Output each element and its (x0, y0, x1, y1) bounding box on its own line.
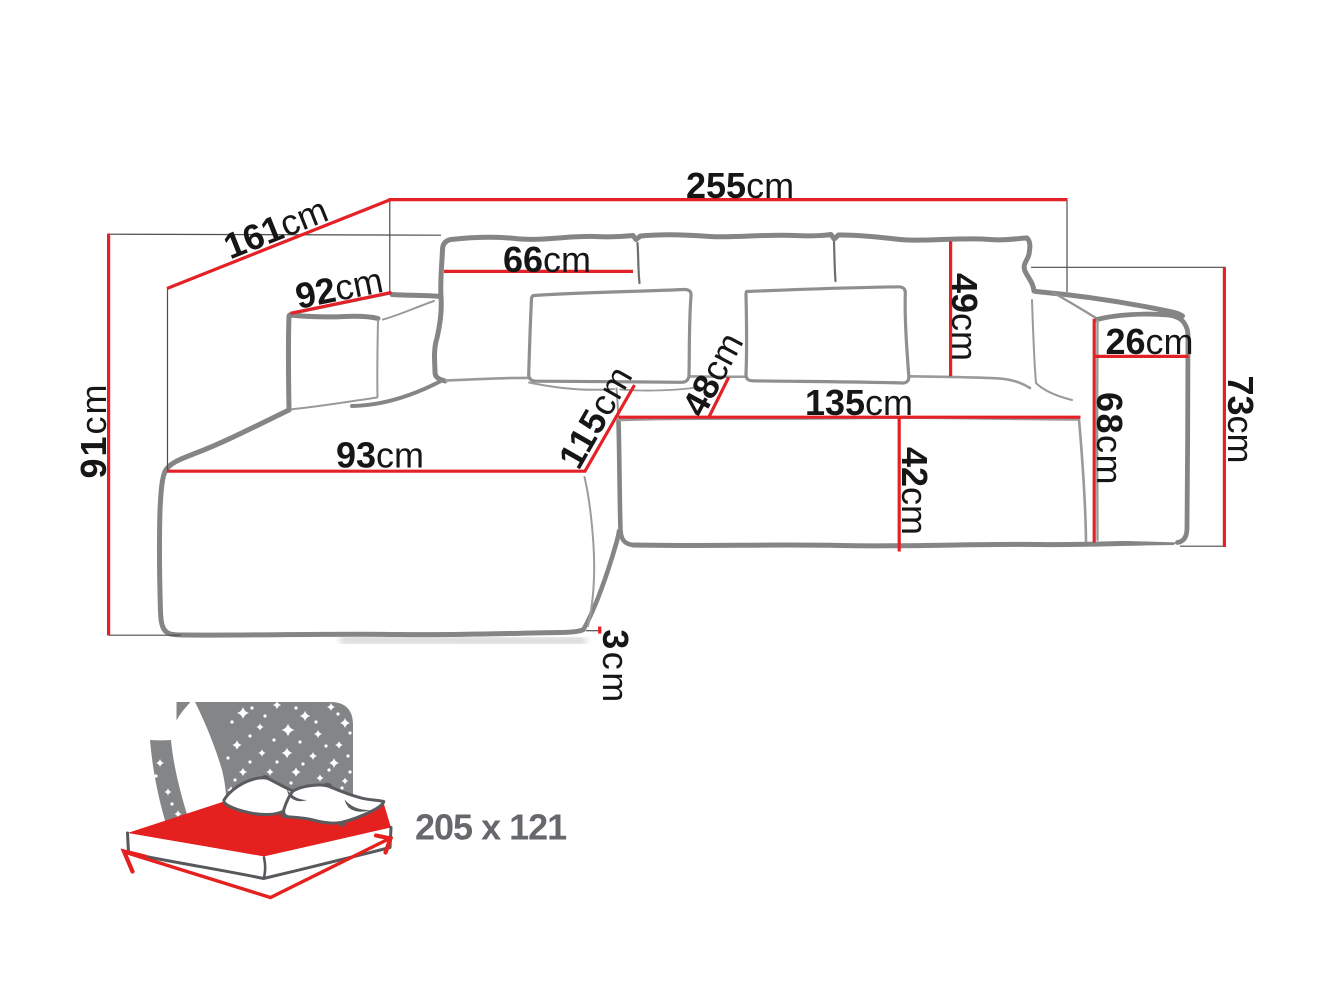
svg-text:255cm: 255cm (686, 165, 794, 206)
svg-text:91cm: 91cm (73, 382, 114, 478)
svg-text:66cm: 66cm (503, 239, 591, 280)
svg-text:49cm: 49cm (944, 273, 985, 361)
svg-text:92cm: 92cm (292, 259, 386, 317)
svg-text:161cm: 161cm (218, 189, 334, 267)
svg-text:26cm: 26cm (1105, 321, 1193, 362)
svg-text:93cm: 93cm (336, 435, 424, 476)
svg-text:73cm: 73cm (1220, 375, 1261, 463)
svg-text:42cm: 42cm (894, 447, 935, 535)
svg-text:68cm: 68cm (1089, 392, 1130, 486)
svg-text:3cm: 3cm (595, 629, 636, 705)
svg-text:135cm: 135cm (805, 382, 913, 423)
svg-text:205 x 121: 205 x 121 (415, 807, 567, 848)
